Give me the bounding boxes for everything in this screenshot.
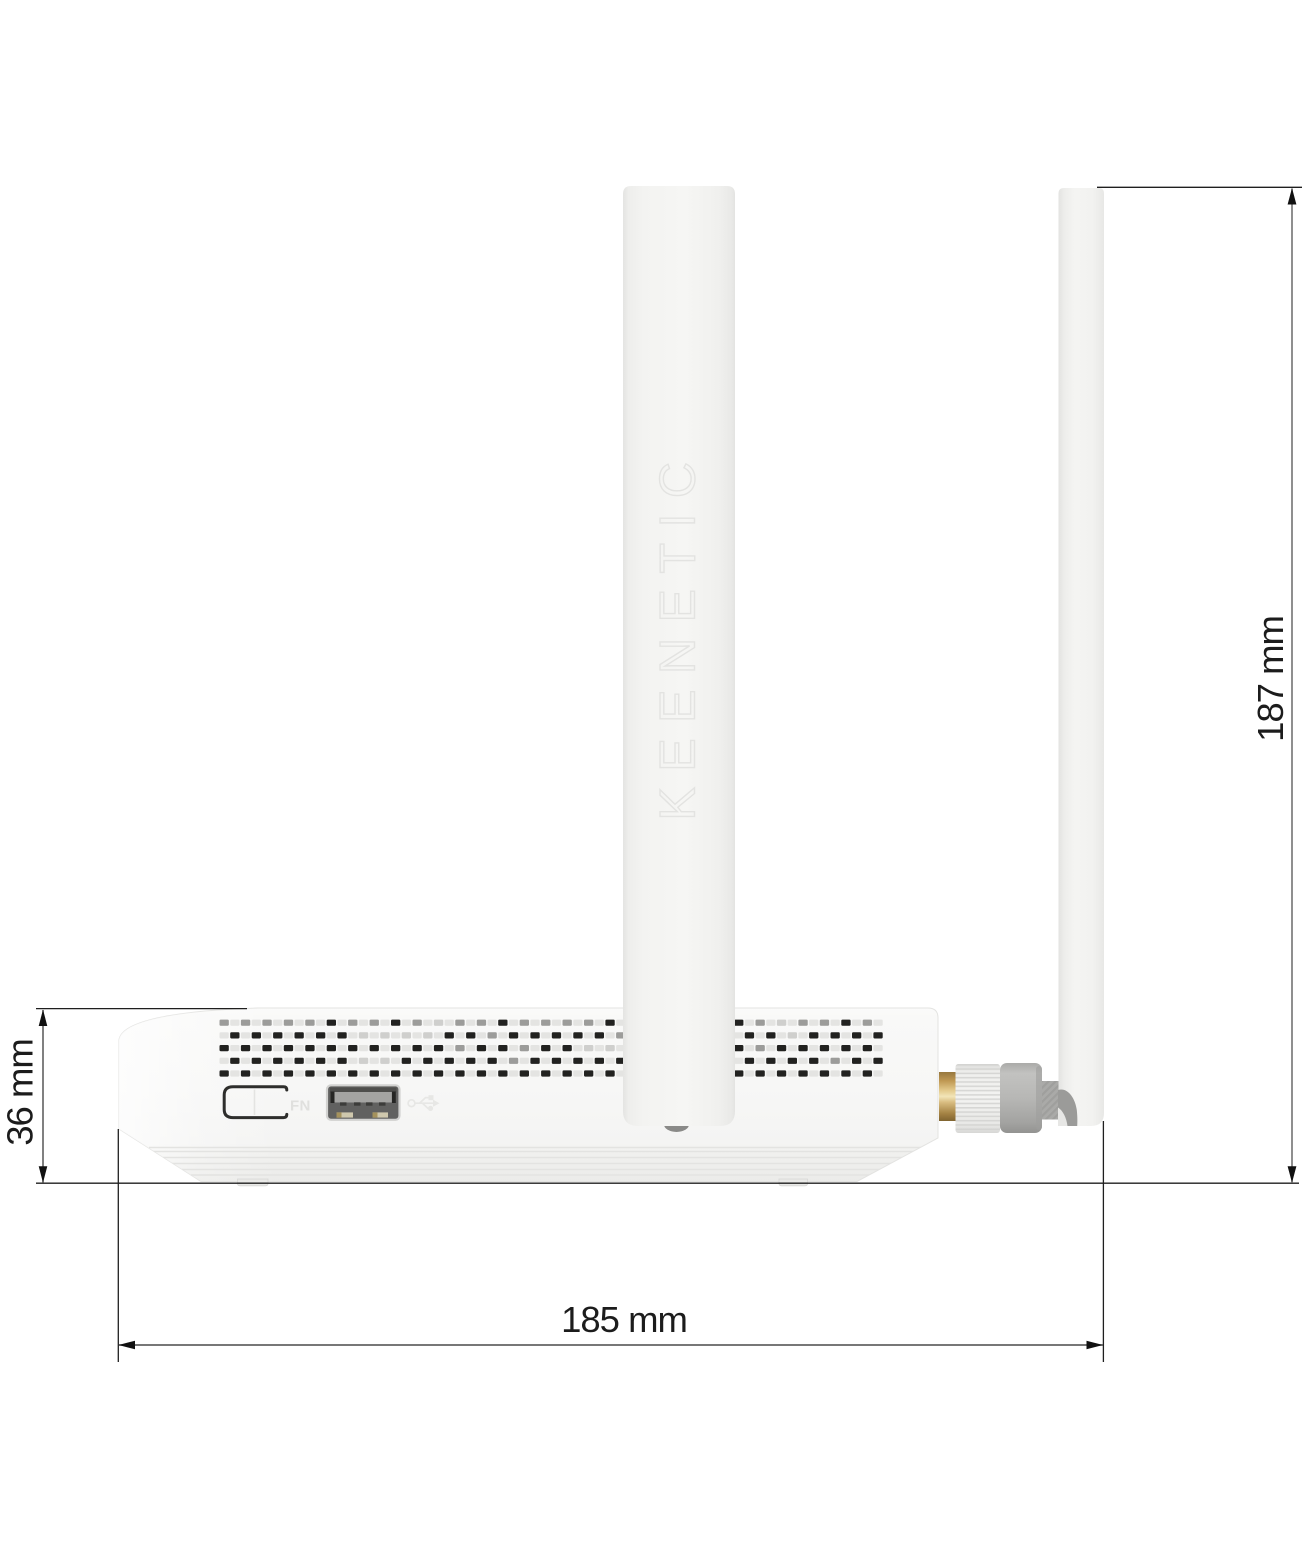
svg-text:KEENETIC: KEENETIC [650,446,706,820]
svg-text:FN: FN [290,1098,311,1115]
svg-text:187 mm: 187 mm [1250,616,1291,742]
svg-text:36 mm: 36 mm [0,1039,41,1146]
svg-text:185 mm: 185 mm [561,1299,687,1340]
